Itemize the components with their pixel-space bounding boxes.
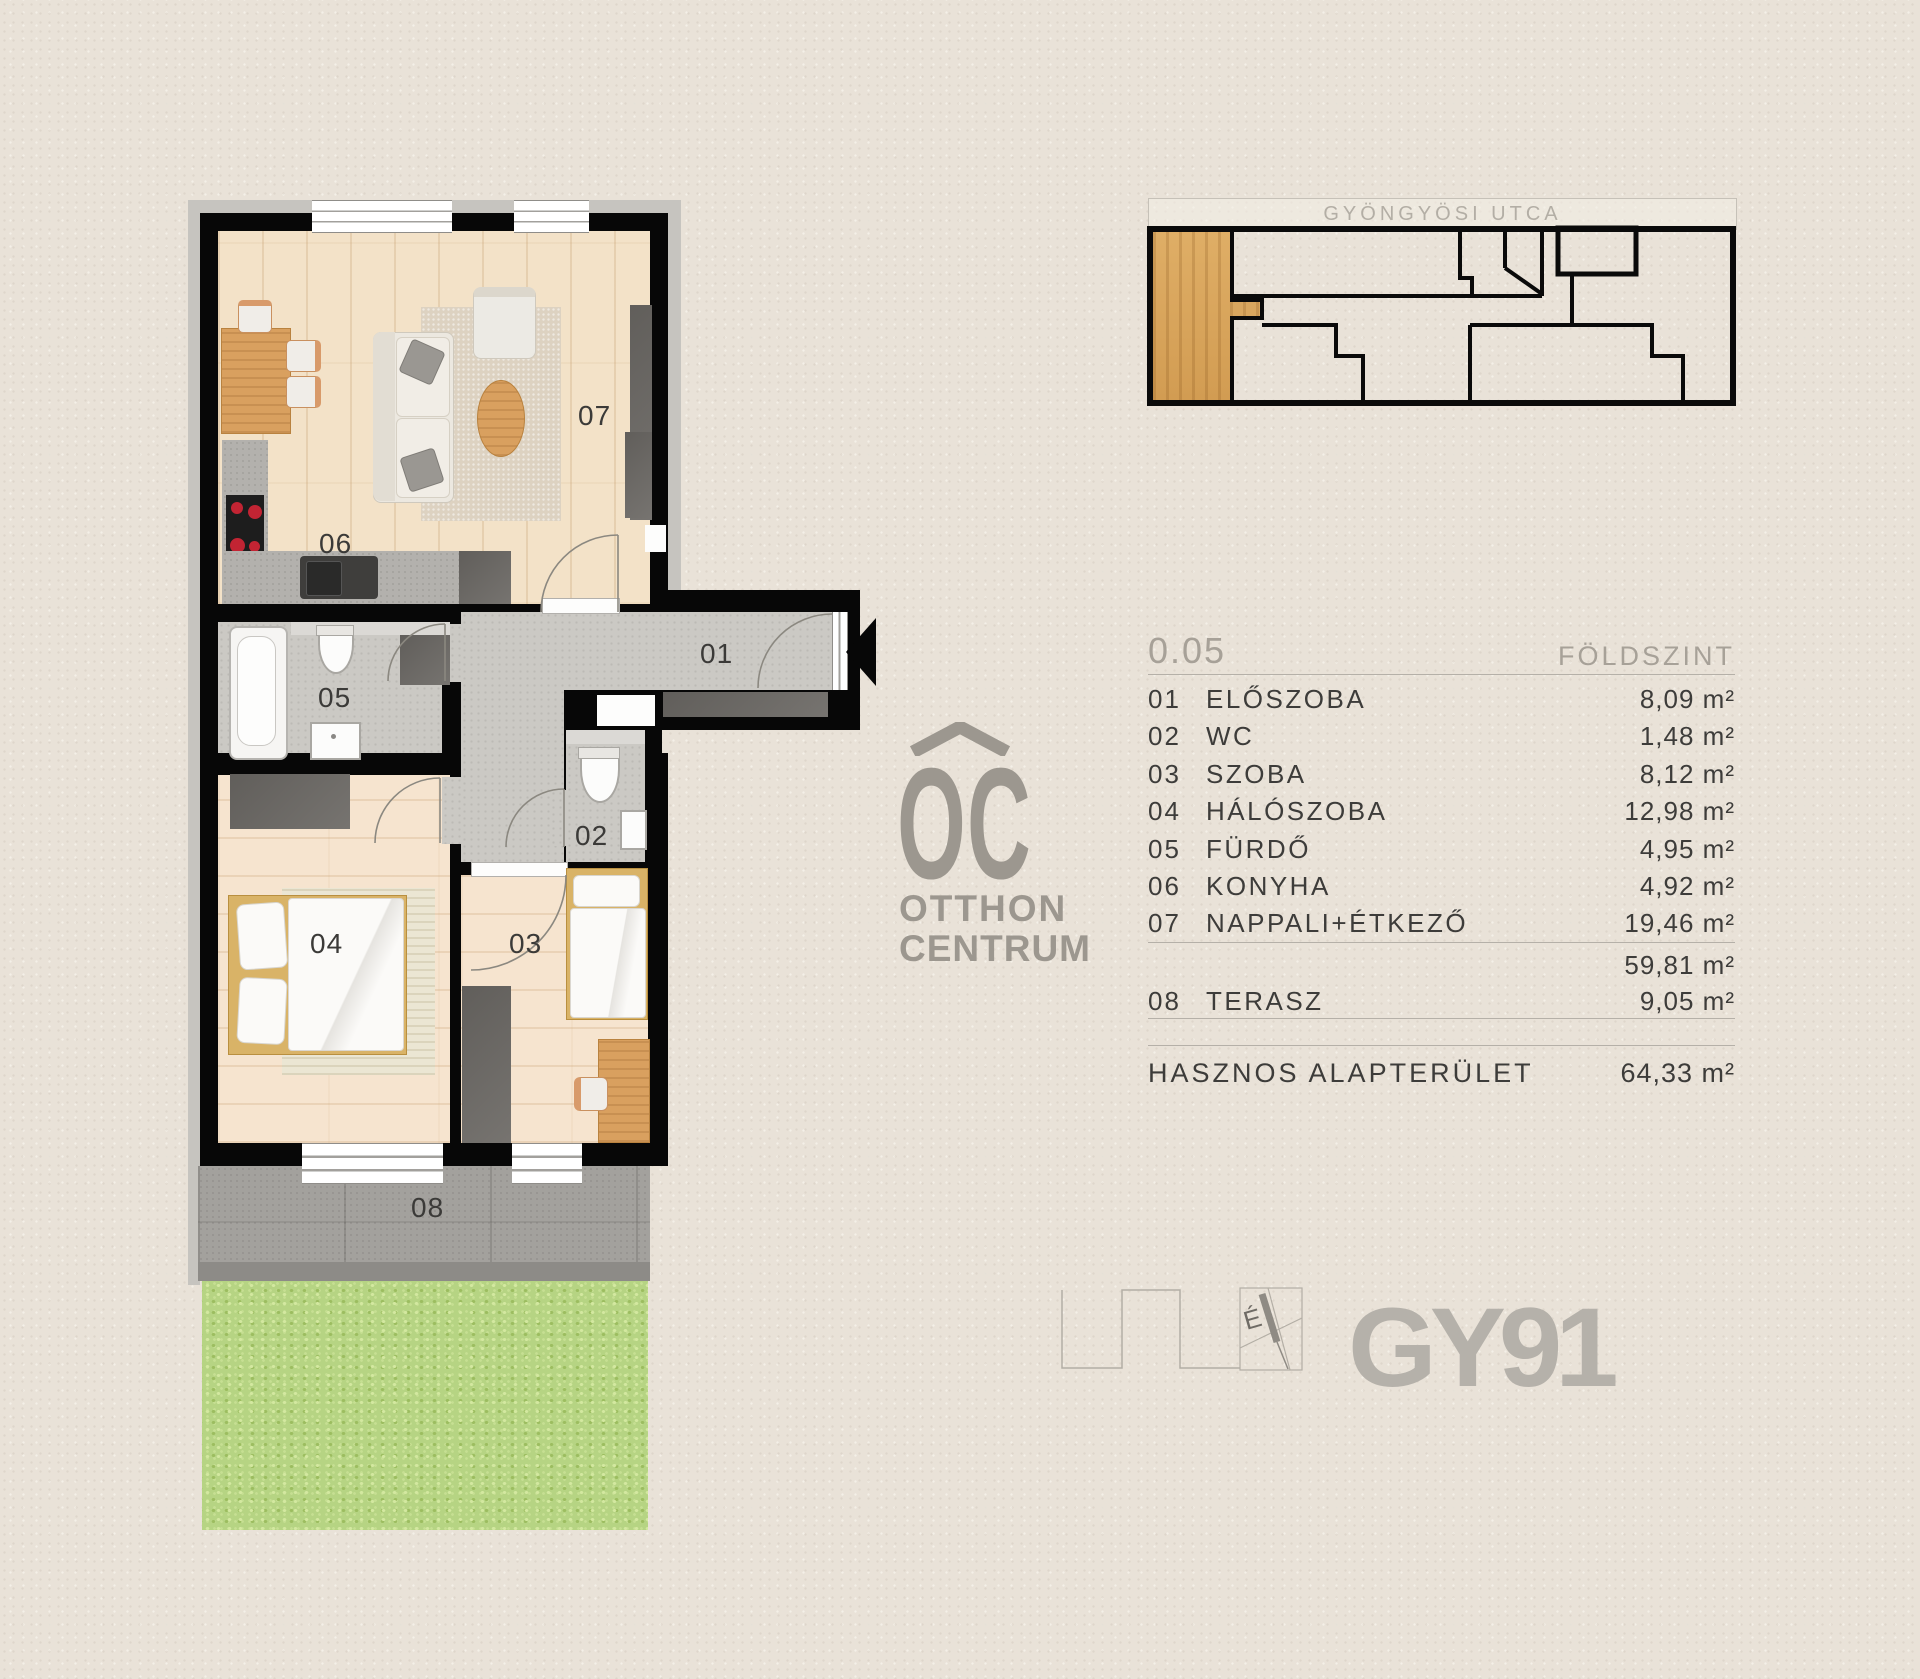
bedroom-wardrobe [230,774,350,829]
room-row: 02 WC 1,48 m² [1148,721,1735,752]
coffee-table [477,380,525,457]
bathtub-inner [237,636,276,746]
single-bed-pillow [573,875,640,907]
room-name: WC [1206,721,1640,752]
terrace-row: 08 TERASZ 9,05 m² [1148,986,1735,1017]
project-logo: GY91 [1348,1283,1612,1412]
living-door-threshold [542,598,620,614]
bath-washer [400,635,450,685]
room04-door-gap [442,777,461,844]
room-row: 07 NAPPALI+ÉTKEZŐ 19,46 m² [1148,908,1735,939]
room-row: 01 ELŐSZOBA 8,09 m² [1148,684,1735,715]
cooktop-burner [231,502,243,514]
highlighted-unit [1153,232,1230,400]
room-code: 04 [1148,796,1206,827]
window-top-left [312,200,452,233]
room-label-08: 08 [411,1192,444,1224]
bed-duvet [288,898,404,1051]
exterior-band-right [668,200,681,612]
total-row: HASZNOS ALAPTERÜLET 64,33 m² [1148,1058,1735,1089]
divider [1148,1045,1735,1046]
room-code: 01 [1148,684,1206,715]
living-side-cabinet [625,432,652,518]
armchair [473,287,536,359]
oc-word-centrum: CENTRUM [899,928,1091,970]
toilet-wc-tank [578,747,620,759]
bath-shelf [291,622,450,635]
room-area: 8,09 m² [1640,684,1735,715]
dining-chair [286,340,321,372]
battlement-mark [1062,1290,1240,1368]
room-area: 1,48 m² [1640,721,1735,752]
room-label-07: 07 [578,400,611,432]
wc-door-gap [550,790,566,846]
wc-shelf [566,730,645,744]
floor-label: FÖLDSZINT [1558,641,1735,672]
room-name: SZOBA [1206,759,1640,790]
room-area: 4,92 m² [1640,871,1735,902]
room-row: 06 KONYHA 4,92 m² [1148,871,1735,902]
room-name: KONYHA [1206,871,1640,902]
bath-sink-drain [331,734,336,739]
kitchen-sink-basin [306,561,342,596]
desk-chair [574,1077,608,1111]
wall-niche-corridor [597,695,655,726]
room-area: 9,05 m² [1640,986,1735,1017]
divider [1148,1018,1735,1019]
room-label-01: 01 [700,638,733,670]
panel-header: 0.05 FÖLDSZINT [1148,630,1735,672]
total-area: 64,33 m² [1620,1058,1735,1089]
room-label-06: 06 [319,528,352,560]
room03-wardrobe [462,986,511,1143]
room-code: 08 [1148,986,1206,1017]
exterior-band-left [188,200,200,1285]
toilet-bath-tank [316,625,354,636]
room-row: 04 HÁLÓSZOBA 12,98 m² [1148,796,1735,827]
wall-niche-living [645,525,666,552]
room-code: 06 [1148,871,1206,902]
room-code: 03 [1148,759,1206,790]
kitchen-counter-dark-end [459,551,511,604]
room-name: TERASZ [1206,986,1640,1017]
unit-number: 0.05 [1148,630,1226,672]
room-label-02: 02 [575,820,608,852]
window-bottom-right [512,1143,582,1184]
room-code: 05 [1148,834,1206,865]
total-label: HASZNOS ALAPTERÜLET [1148,1058,1534,1089]
oc-word-otthon: OTTHON [899,888,1067,930]
cooktop-burner [248,505,262,519]
divider [1148,942,1735,943]
oc-monogram: OC [897,745,1032,903]
window-bottom-left [302,1143,443,1184]
bath-sink [310,722,361,760]
corridor-wardrobe-strip [663,692,828,717]
sofa-backrest [373,332,395,501]
divider [1148,674,1735,675]
room-name: FÜRDŐ [1206,834,1640,865]
room-code: 07 [1148,908,1206,939]
street-label: GYÖNGYÖSI UTCA [1323,203,1561,226]
north-letter: É [1240,1302,1265,1337]
dining-chair [238,300,272,333]
room03-door-threshold [471,862,568,877]
terrace-edge [198,1262,650,1281]
room-area: 19,46 m² [1624,908,1735,939]
dining-chair [286,376,321,408]
room-row: 05 FÜRDŐ 4,95 m² [1148,834,1735,865]
room-label-05: 05 [318,682,351,714]
highlighted-unit-notch [1230,300,1262,318]
window-top-right [514,200,589,233]
bed-pillow [236,901,288,970]
garden-grass [202,1281,648,1530]
room-area: 8,12 m² [1640,759,1735,790]
room-area: 4,95 m² [1640,834,1735,865]
subtotal-row: 59,81 m² [1148,950,1735,981]
subtotal-area: 59,81 m² [1624,950,1735,981]
dining-table [221,328,291,434]
street-band: GYÖNGYÖSI UTCA [1148,198,1737,230]
corridor-floor [461,612,832,690]
room-name: NAPPALI+ÉTKEZŐ [1206,908,1624,939]
room-row: 03 SZOBA 8,12 m² [1148,759,1735,790]
single-bed-duvet [570,908,646,1018]
entrance-door-leaf [832,612,848,690]
room-code: 02 [1148,721,1206,752]
room-name: ELŐSZOBA [1206,684,1640,715]
bed-pillow [236,977,287,1045]
room-area: 12,98 m² [1624,796,1735,827]
room-label-04: 04 [310,928,343,960]
room-name: HÁLÓSZOBA [1206,796,1624,827]
wc-basin [620,810,647,850]
room-label-03: 03 [509,928,542,960]
